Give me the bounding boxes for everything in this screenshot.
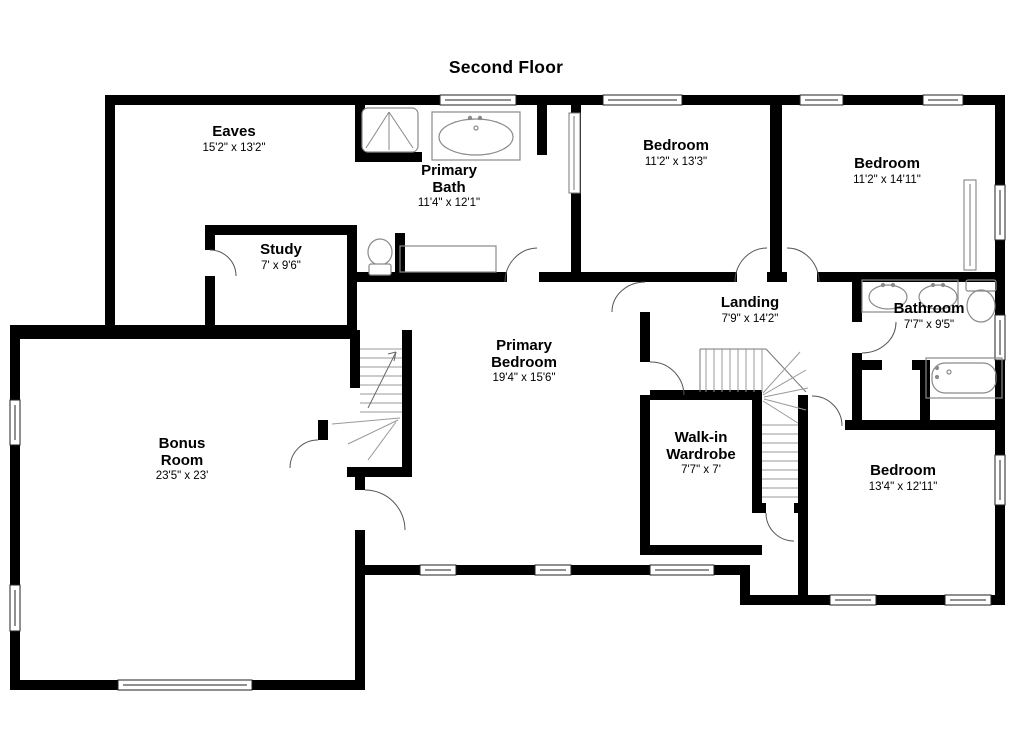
wall-left-upper [105,95,115,333]
wall-study-west-b [205,276,215,333]
room-dimensions: 11'2" x 14'11" [853,173,921,188]
bonus-stair-door [290,440,318,468]
toilet-bowl [967,290,995,322]
stair-winder [763,401,798,423]
room-label-primary-bath: Primary Bath11'4" x 12'1" [418,163,480,211]
room-label-eaves: Eaves15'2" x 13'2" [202,124,265,155]
room-label-landing: Landing7'9" x 14'2" [721,295,779,326]
drain [947,370,951,374]
toilet [966,280,996,322]
faucet-dot [942,284,945,287]
room-name: Walk-in Wardrobe [666,430,735,463]
wall-divider-south [767,272,787,282]
shower [362,108,418,152]
primary-bedroom-door [612,282,645,312]
stair-rail [766,349,806,392]
primary-bath-door [505,248,537,282]
wall-study-west-a [205,225,215,250]
wall-bathroom-west-b [852,353,862,420]
bathtub-basin [439,119,513,155]
room-dimensions: 19'4" x 15'6" [491,371,557,386]
faucet-dot [936,367,939,370]
faucet-dot [936,376,939,379]
room-dimensions: 11'4" x 12'1" [418,196,480,211]
wall-stair1-east [402,330,412,477]
toilet-bowl [368,239,392,265]
wall-stair1-south [347,467,412,477]
room-dimensions: 7'7" x 9'5" [894,318,965,333]
wall-stair2-south-a [752,503,766,513]
wall-bedroom-divider [770,95,782,282]
room-name: Primary Bath [418,163,480,196]
faucet-dot [882,284,885,287]
room-dimensions: 11'2" x 13'3" [643,155,709,170]
room-name: Bedroom [869,463,938,480]
room-label-bonus-room: Bonus Room23'5" x 23' [156,436,209,484]
stair2-door [766,513,794,541]
bedroom2-door [787,248,819,282]
stair-direction-arrow [368,352,396,408]
primary-west-door [365,490,405,530]
toilet-base [369,264,391,275]
bathtub [432,112,520,160]
room-label-bathroom: Bathroom7'7" x 9'5" [894,301,965,332]
room-dimensions: 7' x 9'6" [260,259,302,274]
room-name: Eaves [202,124,265,141]
room-label-bedroom-1: Bedroom11'2" x 13'3" [643,138,709,169]
drain [474,126,478,130]
room-dimensions: 7'7" x 7' [666,463,735,478]
room-dimensions: 15'2" x 13'2" [202,141,265,156]
faucet-dot [468,116,471,119]
wall-wardrobe-west [640,395,650,555]
room-label-walk-in-wardrobe: Walk-in Wardrobe7'7" x 7' [666,430,735,478]
wall-stair1-stub [318,420,328,440]
wall-bonus-north [10,325,357,339]
wall-bonus-east-lower [355,530,365,690]
room-dimensions: 13'4" x 12'11" [869,480,938,495]
faucet-dot [932,284,935,287]
stair-winder [763,370,806,395]
wall-bedroom1-south [581,272,737,282]
room-dimensions: 7'9" x 14'2" [721,312,779,327]
room-name: Bedroom [643,138,709,155]
room-name: Landing [721,295,779,312]
wall-top [105,95,1005,105]
vanity-counter [400,246,496,272]
faucet-dot [892,284,895,287]
room-dimensions: 23'5" x 23' [156,469,209,484]
bathtub [926,358,1002,398]
wall-bonus-west [10,330,20,690]
wall-stair2-south-b [794,503,808,513]
bathtub-basin [932,363,996,393]
stair-winder [332,418,400,424]
wall-bedroom2-south [817,272,855,282]
wall-wardrobe-east [752,398,762,513]
room-name: Primary Bedroom [491,338,557,371]
stair-winder [348,420,398,444]
room-label-primary-bedroom: Primary Bedroom19'4" x 15'6" [491,338,557,386]
rear-staircase [332,349,402,460]
wall-eaves-study [205,225,357,235]
wall-landing-west [640,312,650,362]
wall-stair1-west [350,330,360,388]
study-door [210,250,236,276]
room-name: Bonus Room [156,436,209,469]
shower-tray [362,108,418,152]
room-label-bedroom-2: Bedroom11'2" x 14'11" [853,156,921,187]
room-name: Bedroom [853,156,921,173]
floor-plan: Second Floor Eaves15'2" x 13'2"Primary B… [0,0,1014,735]
toilet [368,239,392,275]
wall-bath-east [537,95,547,155]
wall-wardrobe-south [640,545,762,555]
room-label-study: Study7' x 9'6" [260,242,302,273]
wall-bathroom-jog [920,360,930,430]
bathroom-door [862,322,896,353]
stair-winder [763,352,800,393]
wall-bathroom-south-a [862,360,882,370]
bedroom3-door [812,396,842,426]
faucet-dot [478,116,481,119]
room-label-bedroom-3: Bedroom13'4" x 12'11" [869,463,938,494]
room-name: Study [260,242,302,259]
wall-shower-south [355,152,422,162]
wall-bedroom3-west [798,395,808,595]
wall-bathroom-west-a [852,272,862,322]
bedroom1-door [735,248,767,282]
room-name: Bathroom [894,301,965,318]
